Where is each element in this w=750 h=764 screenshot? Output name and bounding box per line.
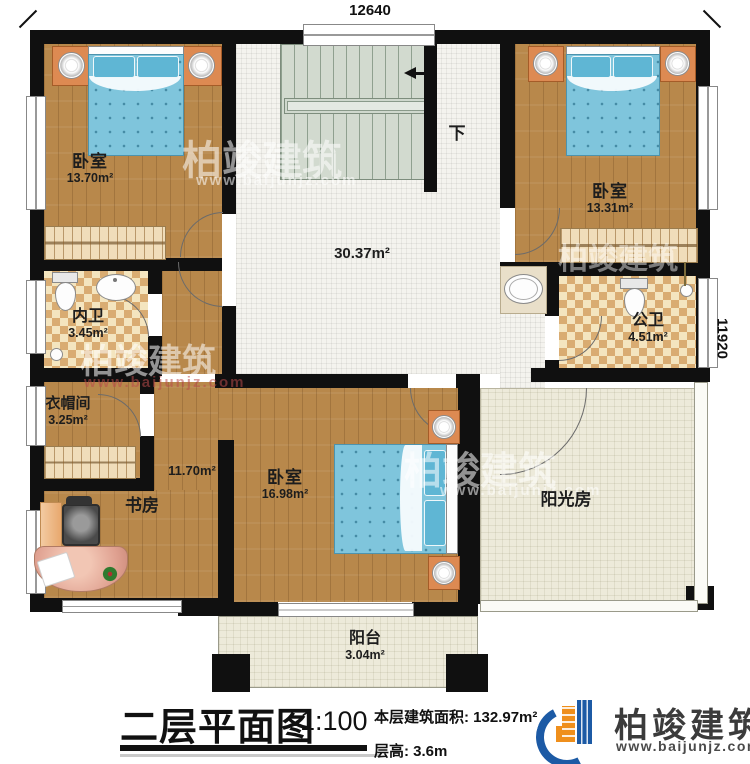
room-label-hall-area: 30.37m² [310, 246, 414, 263]
balcony-post-left [212, 654, 250, 692]
wall-bedroom-main-bottom-right [412, 602, 478, 616]
room-name: 公卫 [598, 312, 698, 330]
title-underline-thin [120, 754, 380, 757]
wall-outer-top-right [434, 30, 710, 44]
wardrobe-cloakroom [44, 446, 136, 479]
room-label-bedroom-tl: 卧室 13.70m² [40, 152, 140, 185]
wall-cloakroom-bottom [30, 478, 154, 491]
watermark-url: www.baijunjz.com [84, 374, 245, 391]
room-area: 16.98m² [240, 487, 330, 501]
lamp-icon [533, 51, 558, 76]
room-label-inner-bath: 内卫 3.45m² [38, 308, 138, 340]
wall-bedroom-tr-left-upper [500, 44, 515, 208]
sunroom-glass-bottom [480, 600, 698, 612]
room-label-study: 书房 [110, 496, 174, 515]
watermark-brand: 柏竣建筑 [558, 234, 678, 278]
sunroom-glass-right [694, 382, 708, 604]
dimension-right: 11920 [714, 309, 731, 369]
window-top [303, 24, 435, 46]
study-monitor [62, 504, 100, 546]
wall-stairwell-stub [424, 30, 437, 192]
shower-head-icon [50, 348, 63, 361]
logo-building-blue [577, 700, 592, 744]
lamp-icon [432, 561, 456, 585]
study-plant-icon [102, 566, 118, 582]
wall-public-bath-left-upper [545, 276, 559, 316]
room-label-public-bath: 公卫 4.51m² [598, 312, 698, 344]
lamp-icon [432, 415, 456, 439]
wall-inner-bath-right-upper [148, 262, 162, 294]
balcony-post-right [446, 654, 488, 692]
wardrobe-bedroom-tl [44, 226, 166, 260]
room-area: 13.70m² [40, 171, 140, 185]
stair-direction-arrow-icon [404, 67, 416, 79]
pillow [93, 56, 135, 78]
room-label-corridor-area: 11.70m² [150, 464, 234, 479]
page-title: 二层平面图 [120, 696, 315, 751]
wall-study-right [218, 490, 234, 602]
room-name: 卧室 [560, 182, 660, 201]
study-side-cabinet [40, 502, 62, 548]
room-label-balcony: 阳台 3.04m² [310, 630, 420, 662]
pillow [613, 56, 653, 78]
title-underline-thick [120, 745, 367, 751]
floor-height-text: 层高: 3.6m [374, 740, 447, 761]
floor-area-text: 本层建筑面积: 132.97m² [374, 706, 537, 727]
stair-landing-rail [284, 98, 436, 114]
room-name: 阳台 [310, 630, 420, 648]
room-area: 3.25m² [18, 413, 118, 427]
room-label-bedroom-tr: 卧室 13.31m² [560, 182, 660, 215]
room-area: 13.31m² [560, 201, 660, 215]
shower-hose-line [684, 262, 686, 286]
basin-inner-ring [509, 278, 538, 300]
wall-hall-bottom-right [456, 374, 480, 388]
room-label-sunroom: 阳光房 [526, 490, 606, 509]
logo-building-orange [562, 706, 575, 742]
brand-logo-icon [536, 696, 608, 758]
sink-faucet-dot [113, 278, 117, 282]
corner-tick-top-left [19, 10, 37, 28]
lamp-icon [58, 52, 85, 79]
room-name: 衣帽间 [18, 396, 118, 413]
corner-tick-top-right [703, 10, 721, 28]
wall-outer-top-left [30, 30, 303, 44]
room-name: 卧室 [40, 152, 140, 171]
watermark-url: www.baijunjz.com [196, 172, 357, 189]
floorplan-page: 下 [0, 0, 750, 764]
brand-url: www.baijunjz.com [616, 738, 750, 754]
wall-public-bath-bottom [531, 368, 710, 382]
shower-head-icon [680, 284, 693, 297]
lamp-icon [188, 52, 215, 79]
logo-building-step [556, 726, 562, 742]
room-area: 4.51m² [598, 330, 698, 344]
pillow [571, 56, 611, 78]
window-right-bedroom-tr [698, 86, 718, 210]
room-label-bedroom-main: 卧室 16.98m² [240, 468, 330, 501]
room-name: 卧室 [240, 468, 330, 487]
pillow [424, 500, 446, 546]
stair-down-label: 下 [444, 124, 470, 143]
study-monitor-cap [66, 496, 92, 505]
lamp-icon [665, 51, 690, 76]
room-area: 3.04m² [310, 648, 420, 662]
room-area: 3.45m² [38, 326, 138, 340]
room-name: 内卫 [38, 308, 138, 326]
room-label-cloakroom: 衣帽间 3.25m² [18, 396, 118, 427]
wall-bedroom-main-bottom-left [178, 602, 278, 616]
window-study-bottom [62, 600, 182, 613]
plan-scale: 1:100 [300, 706, 368, 737]
dimension-top: 12640 [340, 2, 400, 19]
pillow [137, 56, 179, 78]
window-balcony-door [278, 603, 414, 617]
